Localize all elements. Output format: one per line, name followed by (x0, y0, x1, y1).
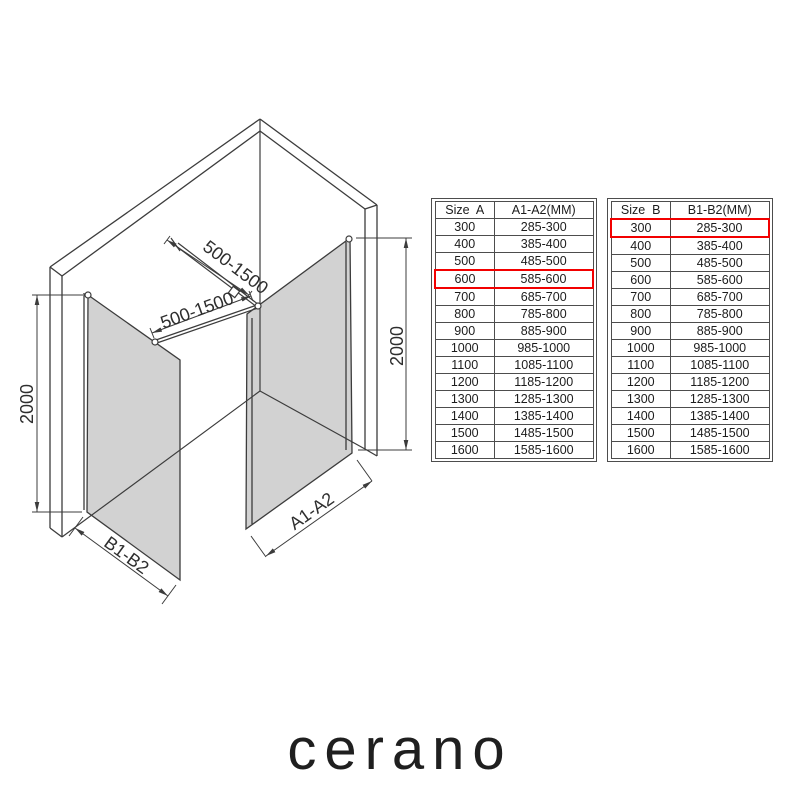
table-row: 900885-900 (611, 323, 769, 340)
brand-logo: cerano (0, 716, 800, 783)
table-cell: 585-600 (670, 272, 769, 289)
table-row: 400385-400 (611, 237, 769, 255)
table-cell: 800 (611, 306, 670, 323)
table-cell: 400 (435, 235, 494, 252)
size-table: Size BB1-B2(MM)300285-300400385-40050048… (610, 201, 770, 459)
table-row: 13001285-1300 (435, 390, 593, 407)
table-cell: 600 (435, 270, 494, 288)
dim-label-height-right: 2000 (387, 326, 407, 366)
table-row: 16001585-1600 (435, 441, 593, 458)
table-cell: 385-400 (670, 237, 769, 255)
table-cell: 900 (435, 323, 494, 340)
table-row: 500485-500 (435, 252, 593, 270)
table-row: 16001585-1600 (611, 441, 769, 458)
table-cell: 1100 (435, 357, 494, 374)
table-row: 700685-700 (611, 289, 769, 306)
table-cell: 885-900 (670, 323, 769, 340)
table-cell: 485-500 (494, 252, 593, 270)
table-cell: 1400 (435, 407, 494, 424)
table-row: 300285-300 (435, 218, 593, 235)
table-cell: 1085-1100 (494, 357, 593, 374)
table-cell: 500 (611, 255, 670, 272)
table-cell: 1100 (611, 357, 670, 374)
table-cell: 1285-1300 (670, 390, 769, 407)
table-row: 12001185-1200 (435, 373, 593, 390)
table-cell: 385-400 (494, 235, 593, 252)
size-a-table: Size AA1-A2(MM)300285-300400385-40050048… (431, 198, 597, 462)
table-cell: 785-800 (494, 306, 593, 323)
spec-sheet: 500-1500 500-1500 2000 2000 B1-B2 A1-A2 … (0, 0, 800, 800)
table-row: 11001085-1100 (435, 357, 593, 374)
table-cell: 500 (435, 252, 494, 270)
table-cell: 1485-1500 (494, 424, 593, 441)
table-cell: 785-800 (670, 306, 769, 323)
table-row: 14001385-1400 (611, 407, 769, 424)
table-cell: 685-700 (494, 288, 593, 306)
glass-panel-left (87, 295, 180, 580)
table-row: 600585-600 (611, 272, 769, 289)
bar-connector (152, 339, 158, 345)
table-row: 15001485-1500 (435, 424, 593, 441)
table-cell: 285-300 (494, 218, 593, 235)
bar-connector (255, 303, 261, 309)
table-row: 900885-900 (435, 323, 593, 340)
table-cell: 1400 (611, 407, 670, 424)
size-b-table: Size BB1-B2(MM)300285-300400385-40050048… (607, 198, 773, 462)
column-header: A1-A2(MM) (494, 202, 593, 219)
table-cell: 400 (611, 237, 670, 255)
table-cell: 900 (611, 323, 670, 340)
table-cell: 1600 (435, 441, 494, 458)
table-cell: 1300 (435, 390, 494, 407)
table-cell: 700 (435, 288, 494, 306)
table-row-highlighted: 600585-600 (435, 270, 593, 288)
table-cell: 1000 (611, 340, 670, 357)
table-cell: 1585-1600 (670, 441, 769, 458)
table-cell: 1285-1300 (494, 390, 593, 407)
table-cell: 1585-1600 (494, 441, 593, 458)
table-row: 500485-500 (611, 255, 769, 272)
table-cell: 300 (611, 219, 670, 237)
dim-label-height-left: 2000 (17, 384, 37, 424)
table-cell: 1000 (435, 340, 494, 357)
table-cell: 300 (435, 218, 494, 235)
table-row: 15001485-1500 (611, 424, 769, 441)
table-cell: 1385-1400 (670, 407, 769, 424)
column-header: Size B (611, 202, 670, 220)
column-header: B1-B2(MM) (670, 202, 769, 220)
size-table: Size AA1-A2(MM)300285-300400385-40050048… (434, 201, 594, 459)
column-header: Size A (435, 202, 494, 219)
table-row-highlighted: 300285-300 (611, 219, 769, 237)
table-row: 1000985-1000 (435, 340, 593, 357)
panel-top-cap (346, 236, 352, 242)
table-cell: 285-300 (670, 219, 769, 237)
table-cell: 600 (611, 272, 670, 289)
table-cell: 1500 (435, 424, 494, 441)
table-row: 13001285-1300 (611, 390, 769, 407)
table-cell: 1300 (611, 390, 670, 407)
table-row: 11001085-1100 (611, 357, 769, 374)
table-row: 700685-700 (435, 288, 593, 306)
panel-top-cap (85, 292, 91, 298)
table-cell: 1200 (611, 373, 670, 390)
table-row: 800785-800 (611, 306, 769, 323)
table-row: 400385-400 (435, 235, 593, 252)
table-cell: 1085-1100 (670, 357, 769, 374)
table-header-row: Size BB1-B2(MM) (611, 202, 769, 220)
table-cell: 685-700 (670, 289, 769, 306)
glass-panels (84, 238, 352, 580)
table-cell: 1600 (611, 441, 670, 458)
table-row: 14001385-1400 (435, 407, 593, 424)
table-cell: 585-600 (494, 270, 593, 288)
table-cell: 1185-1200 (670, 373, 769, 390)
table-cell: 1185-1200 (494, 373, 593, 390)
table-row: 1000985-1000 (611, 340, 769, 357)
table-cell: 700 (611, 289, 670, 306)
table-row: 12001185-1200 (611, 373, 769, 390)
table-cell: 1385-1400 (494, 407, 593, 424)
table-cell: 985-1000 (670, 340, 769, 357)
table-cell: 800 (435, 306, 494, 323)
table-header-row: Size AA1-A2(MM) (435, 202, 593, 219)
table-cell: 885-900 (494, 323, 593, 340)
table-cell: 1500 (611, 424, 670, 441)
table-cell: 1200 (435, 373, 494, 390)
table-row: 800785-800 (435, 306, 593, 323)
table-cell: 485-500 (670, 255, 769, 272)
table-cell: 985-1000 (494, 340, 593, 357)
table-cell: 1485-1500 (670, 424, 769, 441)
